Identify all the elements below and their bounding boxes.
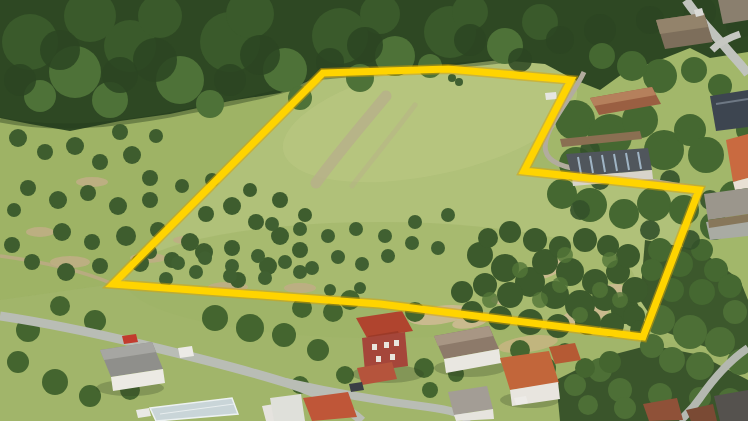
scrub-highlight bbox=[612, 292, 628, 308]
tree-canopy-dark bbox=[570, 200, 590, 220]
orchard-tree bbox=[49, 191, 67, 209]
aerial-photograph bbox=[0, 0, 748, 421]
forest-canopy bbox=[454, 24, 486, 56]
field-tree bbox=[305, 261, 319, 275]
hedgerow-tree bbox=[599, 351, 621, 373]
hedgerow-tree bbox=[272, 323, 296, 347]
orchard-tree bbox=[243, 183, 257, 197]
field-tree bbox=[321, 229, 335, 243]
tree-canopy bbox=[617, 51, 647, 81]
field-tree bbox=[293, 222, 307, 236]
forest-canopy bbox=[508, 48, 532, 72]
orchard-tree bbox=[4, 237, 20, 253]
forest-canopy bbox=[214, 64, 246, 96]
scrub-highlight bbox=[532, 292, 548, 308]
dirt-patch bbox=[26, 227, 54, 237]
orchard-tree bbox=[175, 179, 189, 193]
orchard-tree bbox=[7, 203, 21, 217]
orchard-tree bbox=[92, 154, 108, 170]
orchard-tree bbox=[116, 226, 136, 246]
tree-canopy bbox=[681, 57, 707, 83]
orchard-tree bbox=[292, 242, 308, 258]
tree-canopy bbox=[589, 43, 615, 69]
forest-canopy bbox=[40, 30, 80, 70]
tree-canopy bbox=[609, 199, 639, 229]
field-tree bbox=[355, 257, 369, 271]
field-tree bbox=[265, 217, 279, 231]
shed-white bbox=[270, 394, 305, 421]
tree-canopy bbox=[673, 315, 707, 349]
scrub-highlight bbox=[602, 252, 618, 268]
house-roof-dark bbox=[710, 90, 748, 131]
tree-canopy bbox=[686, 352, 714, 380]
orchard-tree bbox=[24, 254, 40, 270]
house-roof bbox=[718, 0, 748, 24]
orchard-tree bbox=[223, 197, 241, 215]
hedgerow-tree bbox=[575, 358, 595, 378]
hedgerow-tree bbox=[422, 382, 438, 398]
orchard-tree bbox=[80, 185, 96, 201]
forest-canopy bbox=[102, 57, 138, 93]
field-tree bbox=[251, 249, 265, 263]
dirt-patch bbox=[284, 283, 316, 293]
hedgerow-tree bbox=[50, 296, 70, 316]
orchard-tree bbox=[198, 206, 214, 222]
orchard-tree bbox=[142, 170, 158, 186]
scrub-highlight bbox=[512, 262, 528, 278]
field-tree bbox=[354, 282, 366, 294]
field-tree bbox=[223, 269, 237, 283]
tree-canopy bbox=[614, 397, 636, 419]
field-tree bbox=[455, 78, 463, 86]
field-tree bbox=[441, 208, 455, 222]
orchard-tree bbox=[109, 197, 127, 215]
tree-canopy bbox=[641, 259, 663, 281]
orchard-tree bbox=[272, 192, 288, 208]
orchard-tree bbox=[57, 263, 75, 281]
trailer bbox=[545, 92, 557, 100]
orchard-tree bbox=[66, 137, 84, 155]
tree-canopy bbox=[688, 137, 724, 173]
hedgerow-tree bbox=[336, 366, 354, 384]
tree-canopy bbox=[718, 274, 742, 298]
field-tree bbox=[324, 284, 336, 296]
scrub-thicket bbox=[523, 228, 547, 252]
orchard-tree bbox=[53, 223, 71, 241]
tree-canopy bbox=[689, 279, 715, 305]
orchard-tree bbox=[112, 124, 128, 140]
field-tree bbox=[171, 256, 185, 270]
field-tree bbox=[378, 229, 392, 243]
orchard-tree bbox=[142, 192, 158, 208]
scrub-thicket bbox=[451, 281, 473, 303]
orchard-tree bbox=[92, 258, 108, 274]
forest-canopy bbox=[584, 14, 616, 46]
tree-canopy bbox=[578, 395, 598, 415]
tree-canopy bbox=[723, 300, 747, 324]
orchard-tree bbox=[149, 129, 163, 143]
field-tree bbox=[448, 74, 456, 82]
scrub-highlight bbox=[592, 282, 608, 298]
scrub-highlight bbox=[557, 247, 573, 263]
aerial-photo bbox=[0, 0, 748, 421]
field-tree bbox=[278, 255, 292, 269]
forest-canopy bbox=[196, 90, 224, 118]
orchard-tree bbox=[123, 146, 141, 164]
scrub-highlight bbox=[482, 292, 498, 308]
hedgerow-tree bbox=[42, 369, 68, 395]
scrub-thicket bbox=[616, 244, 640, 268]
van-white bbox=[178, 346, 194, 358]
tree-canopy bbox=[637, 187, 671, 221]
orchard-tree bbox=[224, 240, 240, 256]
field-tree bbox=[258, 271, 272, 285]
scrub-thicket bbox=[478, 228, 498, 248]
tree-canopy-dark bbox=[640, 220, 660, 240]
field-tree bbox=[331, 250, 345, 264]
scrub-thicket bbox=[499, 221, 521, 243]
scrub-thicket bbox=[497, 282, 523, 308]
orchard-tree bbox=[9, 129, 27, 147]
field-tree bbox=[349, 222, 363, 236]
hedgerow-tree bbox=[7, 351, 29, 373]
hedgerow-tree bbox=[202, 305, 228, 331]
hedgerow-tree bbox=[307, 339, 329, 361]
field-tree bbox=[408, 215, 422, 229]
scrub-highlight bbox=[552, 277, 568, 293]
scrub-highlight bbox=[572, 307, 588, 323]
field-tree bbox=[405, 236, 419, 250]
dirt-patch bbox=[76, 177, 108, 187]
field-tree bbox=[198, 251, 212, 265]
field-tree bbox=[381, 249, 395, 263]
forest-canopy bbox=[546, 26, 574, 54]
field-tree bbox=[293, 265, 307, 279]
orchard-tree bbox=[84, 234, 100, 250]
field-tree bbox=[189, 265, 203, 279]
forest-canopy bbox=[240, 35, 280, 75]
orchard-tree bbox=[298, 208, 312, 222]
forest-canopy bbox=[133, 38, 177, 82]
tree-canopy bbox=[705, 327, 735, 357]
orchard-tree bbox=[248, 214, 264, 230]
hedgerow-tree bbox=[236, 314, 264, 342]
orchard-tree bbox=[37, 144, 53, 160]
field-tree bbox=[431, 241, 445, 255]
scrub-thicket bbox=[573, 228, 597, 252]
forest-canopy bbox=[4, 64, 36, 96]
forest-canopy bbox=[347, 27, 383, 63]
orchard-tree bbox=[20, 180, 36, 196]
